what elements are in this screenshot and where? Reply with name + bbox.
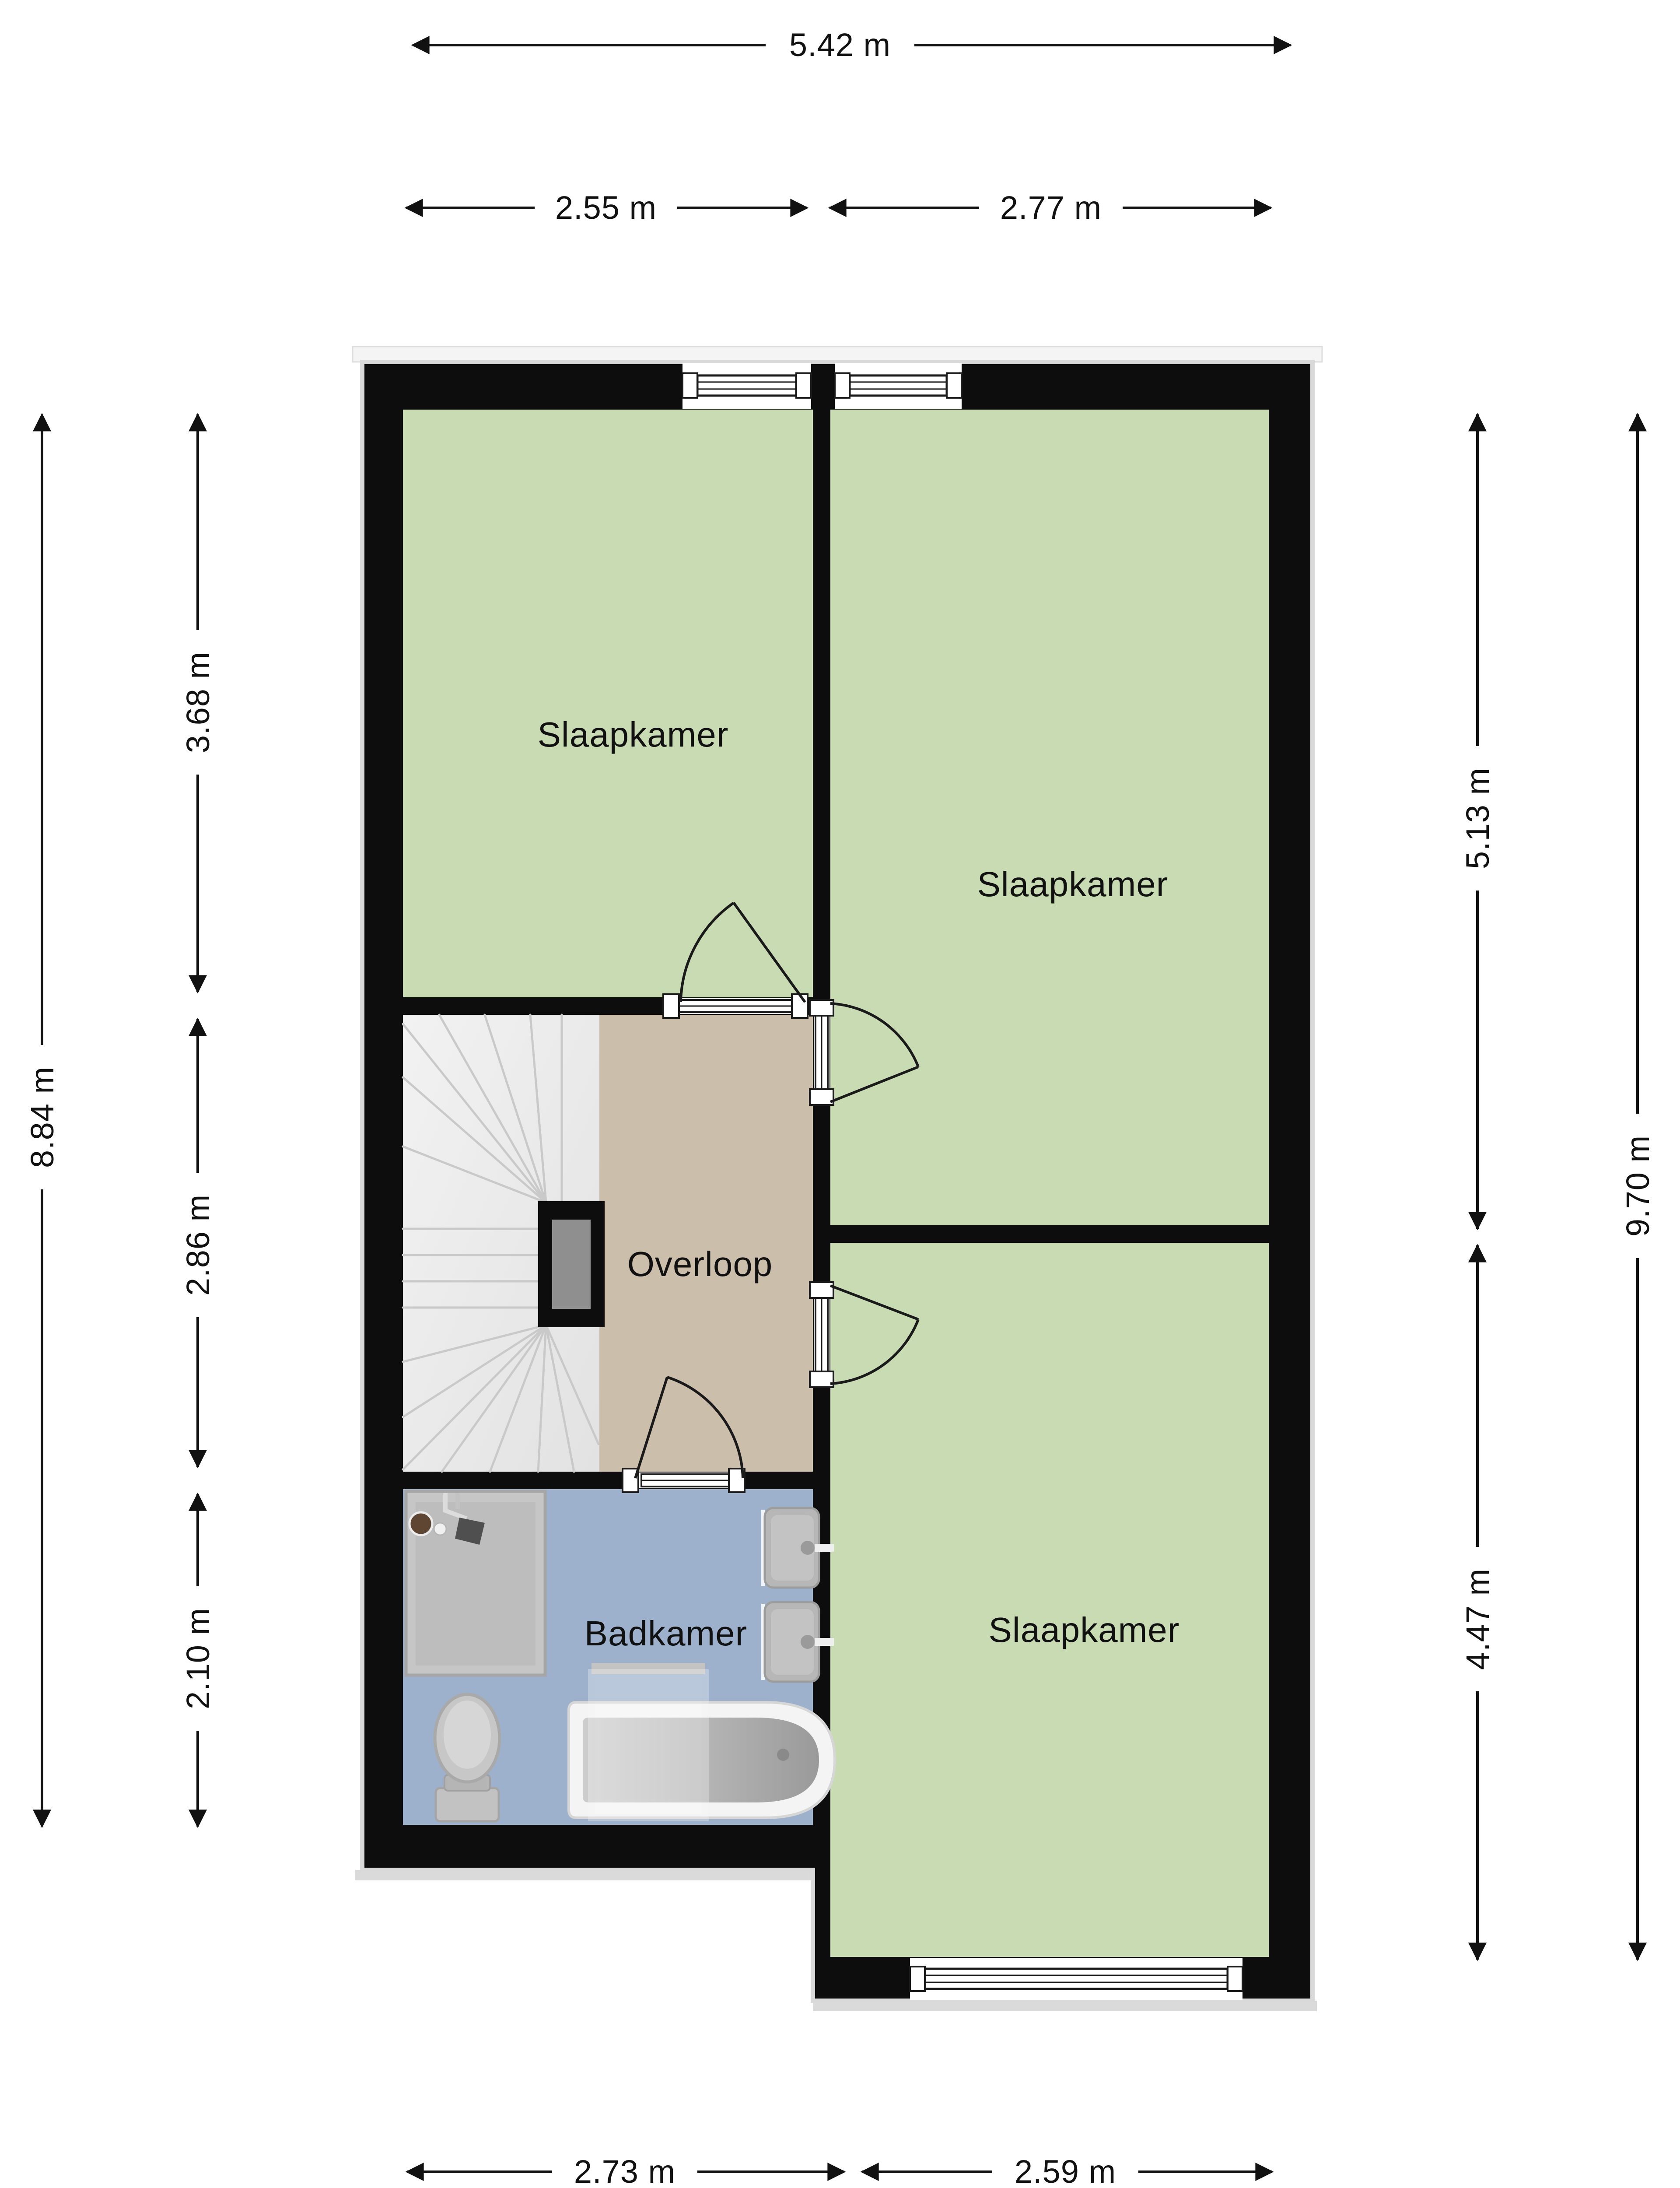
room-label: Slaapkamer	[538, 715, 729, 754]
room-floors	[403, 410, 1269, 1957]
dimension-label: 2.55 m	[555, 189, 657, 226]
bathtub-drain	[777, 1749, 789, 1761]
dimension-label: 2.86 m	[180, 1194, 216, 1296]
dimension-label: 2.73 m	[574, 2153, 675, 2188]
dimension-label: 9.70 m	[1620, 1135, 1656, 1237]
bedroom-bottom-right-floor	[830, 1243, 1269, 1957]
roof-edge-top	[353, 347, 1322, 362]
bedroom-right-floor	[830, 410, 1269, 1225]
floor-plan: Slaapkamer Slaapkamer Slaapkamer Overloo…	[0, 0, 1680, 2188]
bedroom-top-left-floor	[403, 410, 813, 997]
floor-plan-page: Slaapkamer Slaapkamer Slaapkamer Overloo…	[0, 0, 1680, 2188]
toilet	[435, 1694, 500, 1821]
window-top-right	[835, 363, 962, 409]
window-top-left	[682, 363, 811, 409]
dimension-label: 5.42 m	[789, 27, 891, 63]
dimension-label: 2.59 m	[1015, 2153, 1116, 2188]
landing-floor	[599, 1015, 813, 1472]
shower	[406, 1491, 545, 1675]
dimension-label: 2.10 m	[180, 1608, 216, 1709]
room-label: Badkamer	[584, 1614, 748, 1653]
room-label: Slaapkamer	[989, 1610, 1180, 1649]
dimension-label: 8.84 m	[24, 1066, 60, 1168]
stair-well-void	[552, 1220, 591, 1309]
dimension-label: 3.68 m	[180, 652, 216, 753]
dimension-label: 4.47 m	[1459, 1568, 1496, 1670]
dimension-label: 5.13 m	[1459, 768, 1496, 869]
window-bottom	[910, 1958, 1242, 2000]
dimension-label: 2.77 m	[1000, 189, 1102, 226]
room-label: Overloop	[627, 1245, 773, 1283]
bath-screen	[591, 1673, 705, 1818]
room-label: Slaapkamer	[977, 865, 1169, 904]
